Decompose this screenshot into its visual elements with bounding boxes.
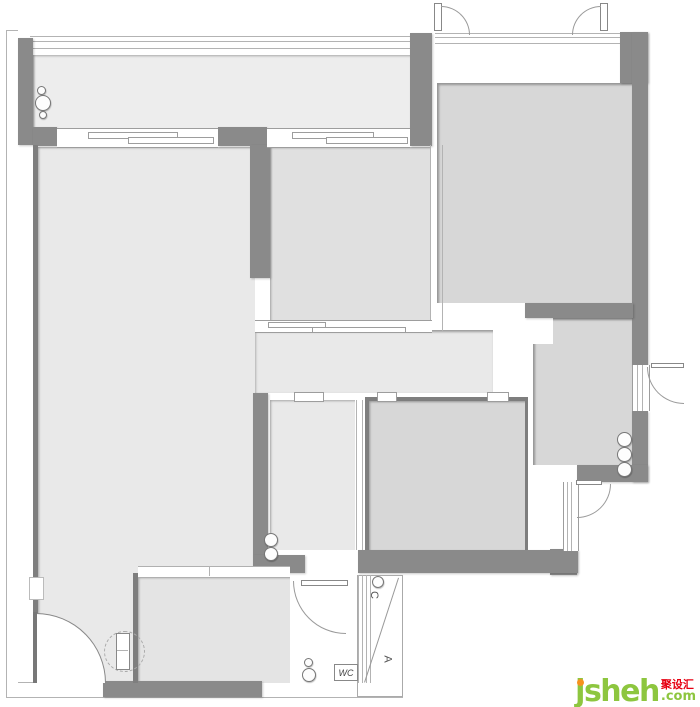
door-swing-arc-icon <box>577 484 611 518</box>
sliding-door-track-tick <box>209 566 210 576</box>
door-leaf <box>301 580 348 586</box>
opening-tick <box>377 392 397 402</box>
wc-label-text: WC <box>339 668 354 678</box>
kitchen-fill <box>270 147 430 320</box>
wall-segment <box>103 681 262 697</box>
wall-notch <box>29 577 44 600</box>
wc-label: WC <box>334 664 358 681</box>
pipe-icon <box>617 432 632 447</box>
sliding-window-panel <box>128 137 214 144</box>
floor-plan-canvas: C A WC jsheh 聚设汇 .com <box>0 0 700 707</box>
shaft-line <box>358 575 359 683</box>
opening-tick <box>487 392 509 402</box>
outline-bottom <box>6 697 403 698</box>
bedroom-fill <box>368 400 528 550</box>
pivot-door-line <box>117 650 128 651</box>
ac-marker-c: C <box>368 591 380 599</box>
partition-line <box>356 400 357 550</box>
entry-threshold-line <box>435 37 632 38</box>
door-swing-arc-icon <box>572 6 601 35</box>
window-mullion <box>642 365 643 411</box>
pivot-door-leaf <box>116 633 130 670</box>
pipe-icon <box>35 95 51 111</box>
window-mullion <box>637 365 638 411</box>
pipe-icon <box>304 658 313 667</box>
shaft-line <box>366 575 367 683</box>
balcony-railing-line <box>30 36 410 37</box>
opening-tick <box>294 392 324 402</box>
pipe-icon <box>302 668 316 682</box>
dining-room-fill <box>437 83 633 303</box>
pipe-icon <box>264 533 278 547</box>
pipe-icon <box>39 111 47 119</box>
wall-segment <box>33 127 57 146</box>
partition-line <box>430 145 431 331</box>
window-mullion <box>567 482 568 551</box>
ac-marker-a: A <box>382 655 394 662</box>
wall-segment <box>358 550 578 573</box>
wall-thin <box>365 397 369 550</box>
pipe-icon <box>617 447 632 462</box>
balcony-railing-line <box>30 48 410 49</box>
partition-line <box>442 145 443 331</box>
pipe-icon <box>617 462 632 477</box>
wall-segment <box>525 303 633 318</box>
watermark-brand: jsheh <box>575 680 659 703</box>
wall-segment <box>250 145 270 278</box>
entry-door-right-leaf <box>600 3 608 31</box>
door-leaf <box>33 612 37 683</box>
watermark-logo: jsheh 聚设汇 .com <box>575 679 696 703</box>
watermark-tld: .com <box>661 690 696 703</box>
sliding-door-track <box>138 566 290 578</box>
wall-thin-left <box>33 145 38 683</box>
watermark-side: 聚设汇 .com <box>661 679 696 703</box>
balcony-railing-line <box>30 41 410 42</box>
wall-segment <box>632 32 648 366</box>
balcony-fill <box>33 55 432 128</box>
bedroom2-fill <box>138 577 290 683</box>
bathroom-corner-notch <box>533 318 553 344</box>
sliding-door-panel <box>312 327 406 333</box>
wall-segment <box>253 393 268 556</box>
wall-segment <box>18 38 33 145</box>
door-swing-arc-icon <box>293 581 346 634</box>
dining-band-fill <box>255 330 493 393</box>
outline-left <box>6 30 7 698</box>
sliding-window-panel <box>326 137 408 144</box>
shaft-line <box>362 575 363 683</box>
pipe-icon <box>264 547 278 561</box>
pipe-icon <box>372 576 384 588</box>
pipe-icon <box>37 86 46 95</box>
door-swing-arc-icon <box>441 6 470 35</box>
window-mullion <box>571 482 572 551</box>
wall-thin <box>525 400 528 550</box>
door-swing-arc-icon <box>647 367 684 404</box>
entry-threshold-line <box>435 43 632 44</box>
wall-segment <box>218 127 267 146</box>
partition-line <box>362 400 363 550</box>
outline-top-left <box>6 30 18 31</box>
wall-segment <box>410 33 432 146</box>
hall-fill <box>270 400 355 550</box>
